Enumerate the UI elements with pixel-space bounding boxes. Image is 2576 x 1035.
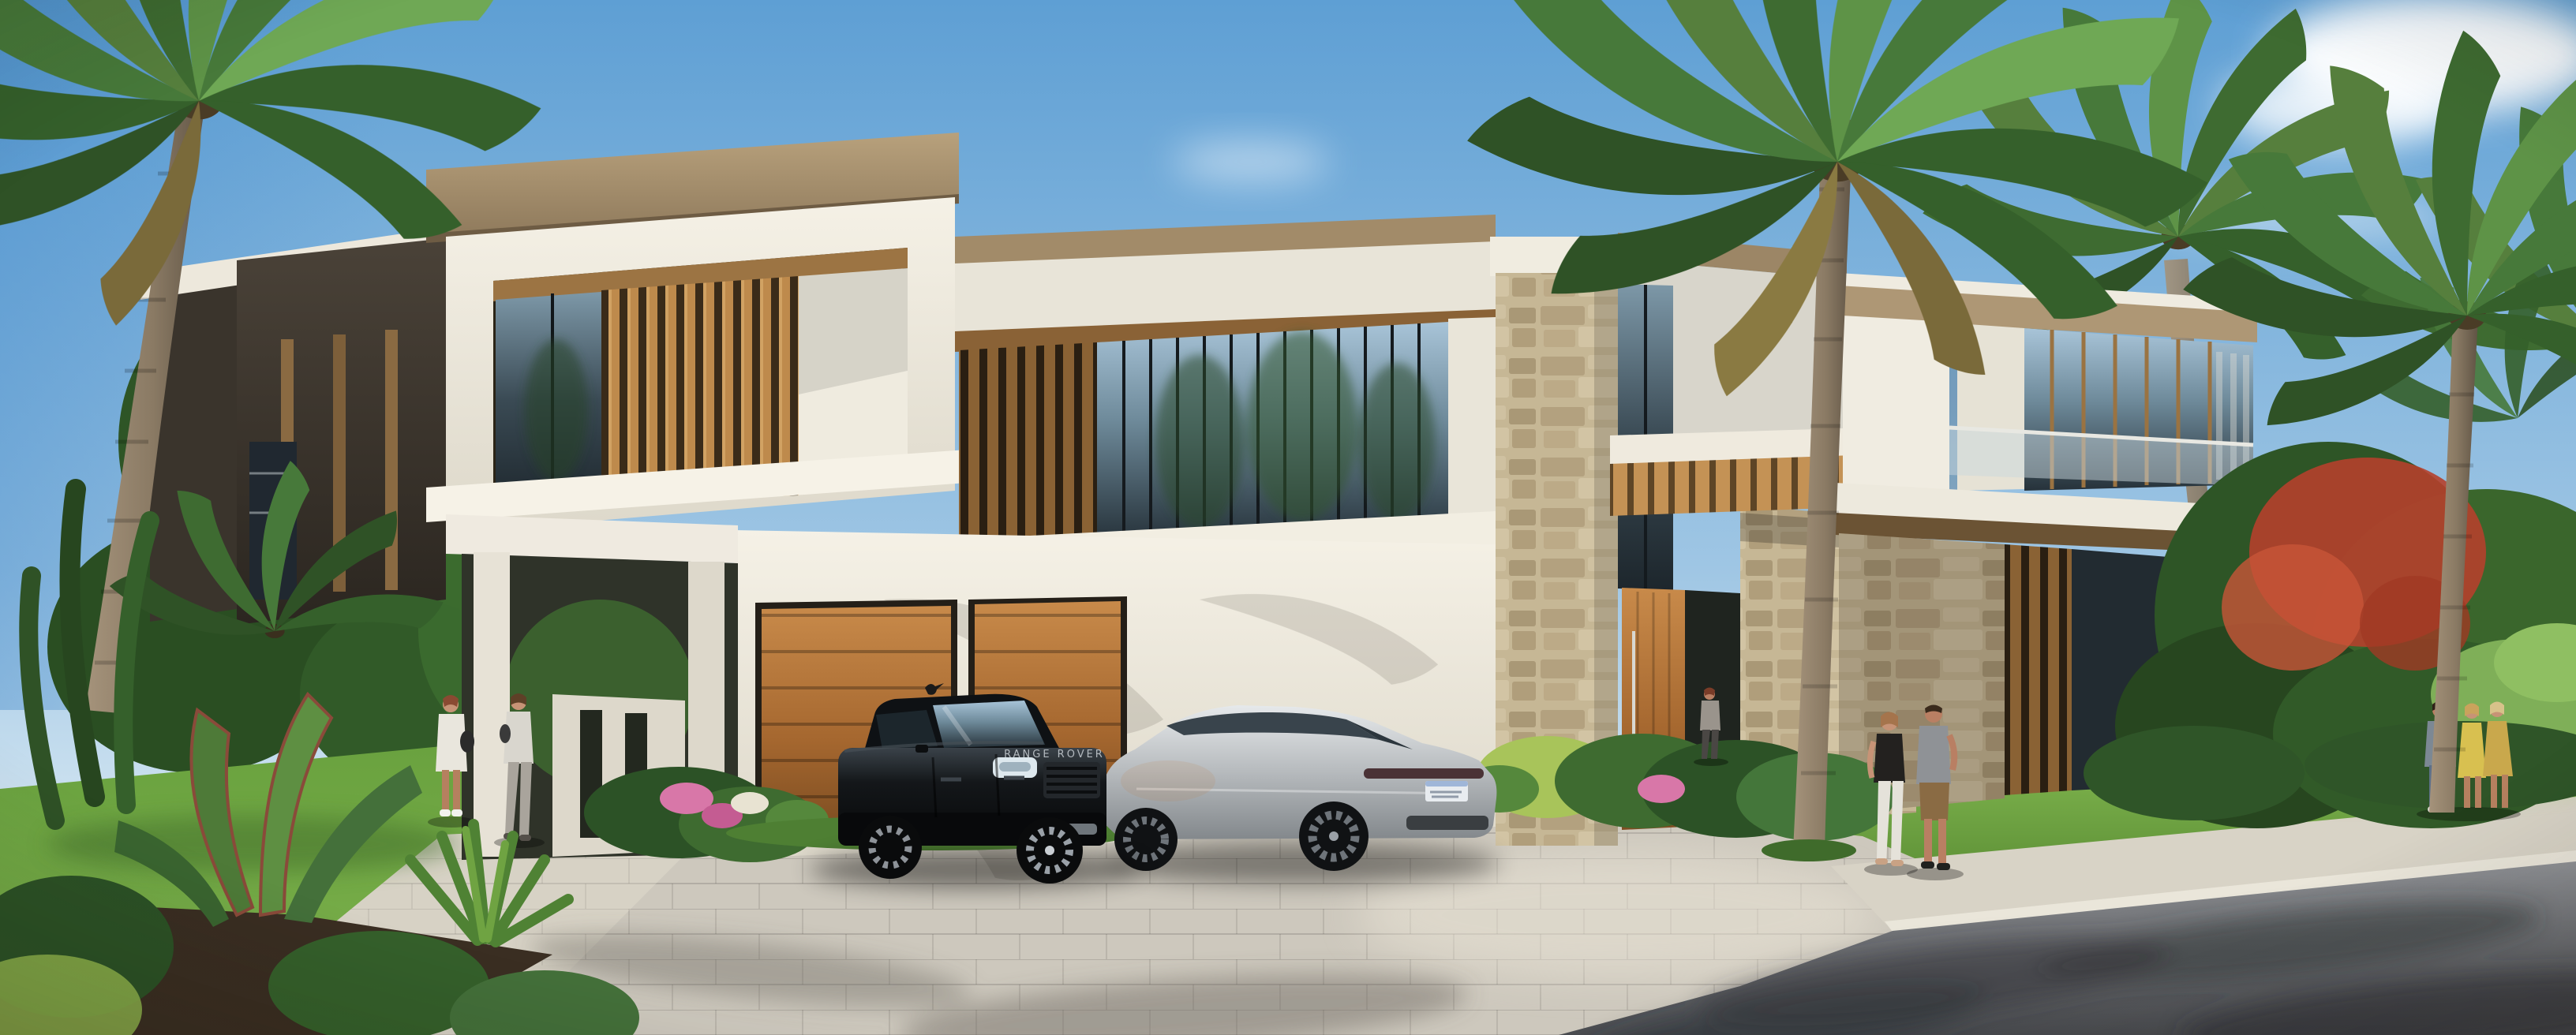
vignette — [0, 0, 2576, 1035]
scene-rendering: RANGE ROVER — [0, 0, 2576, 1035]
rendering-canvas: RANGE ROVER — [0, 0, 2576, 1035]
